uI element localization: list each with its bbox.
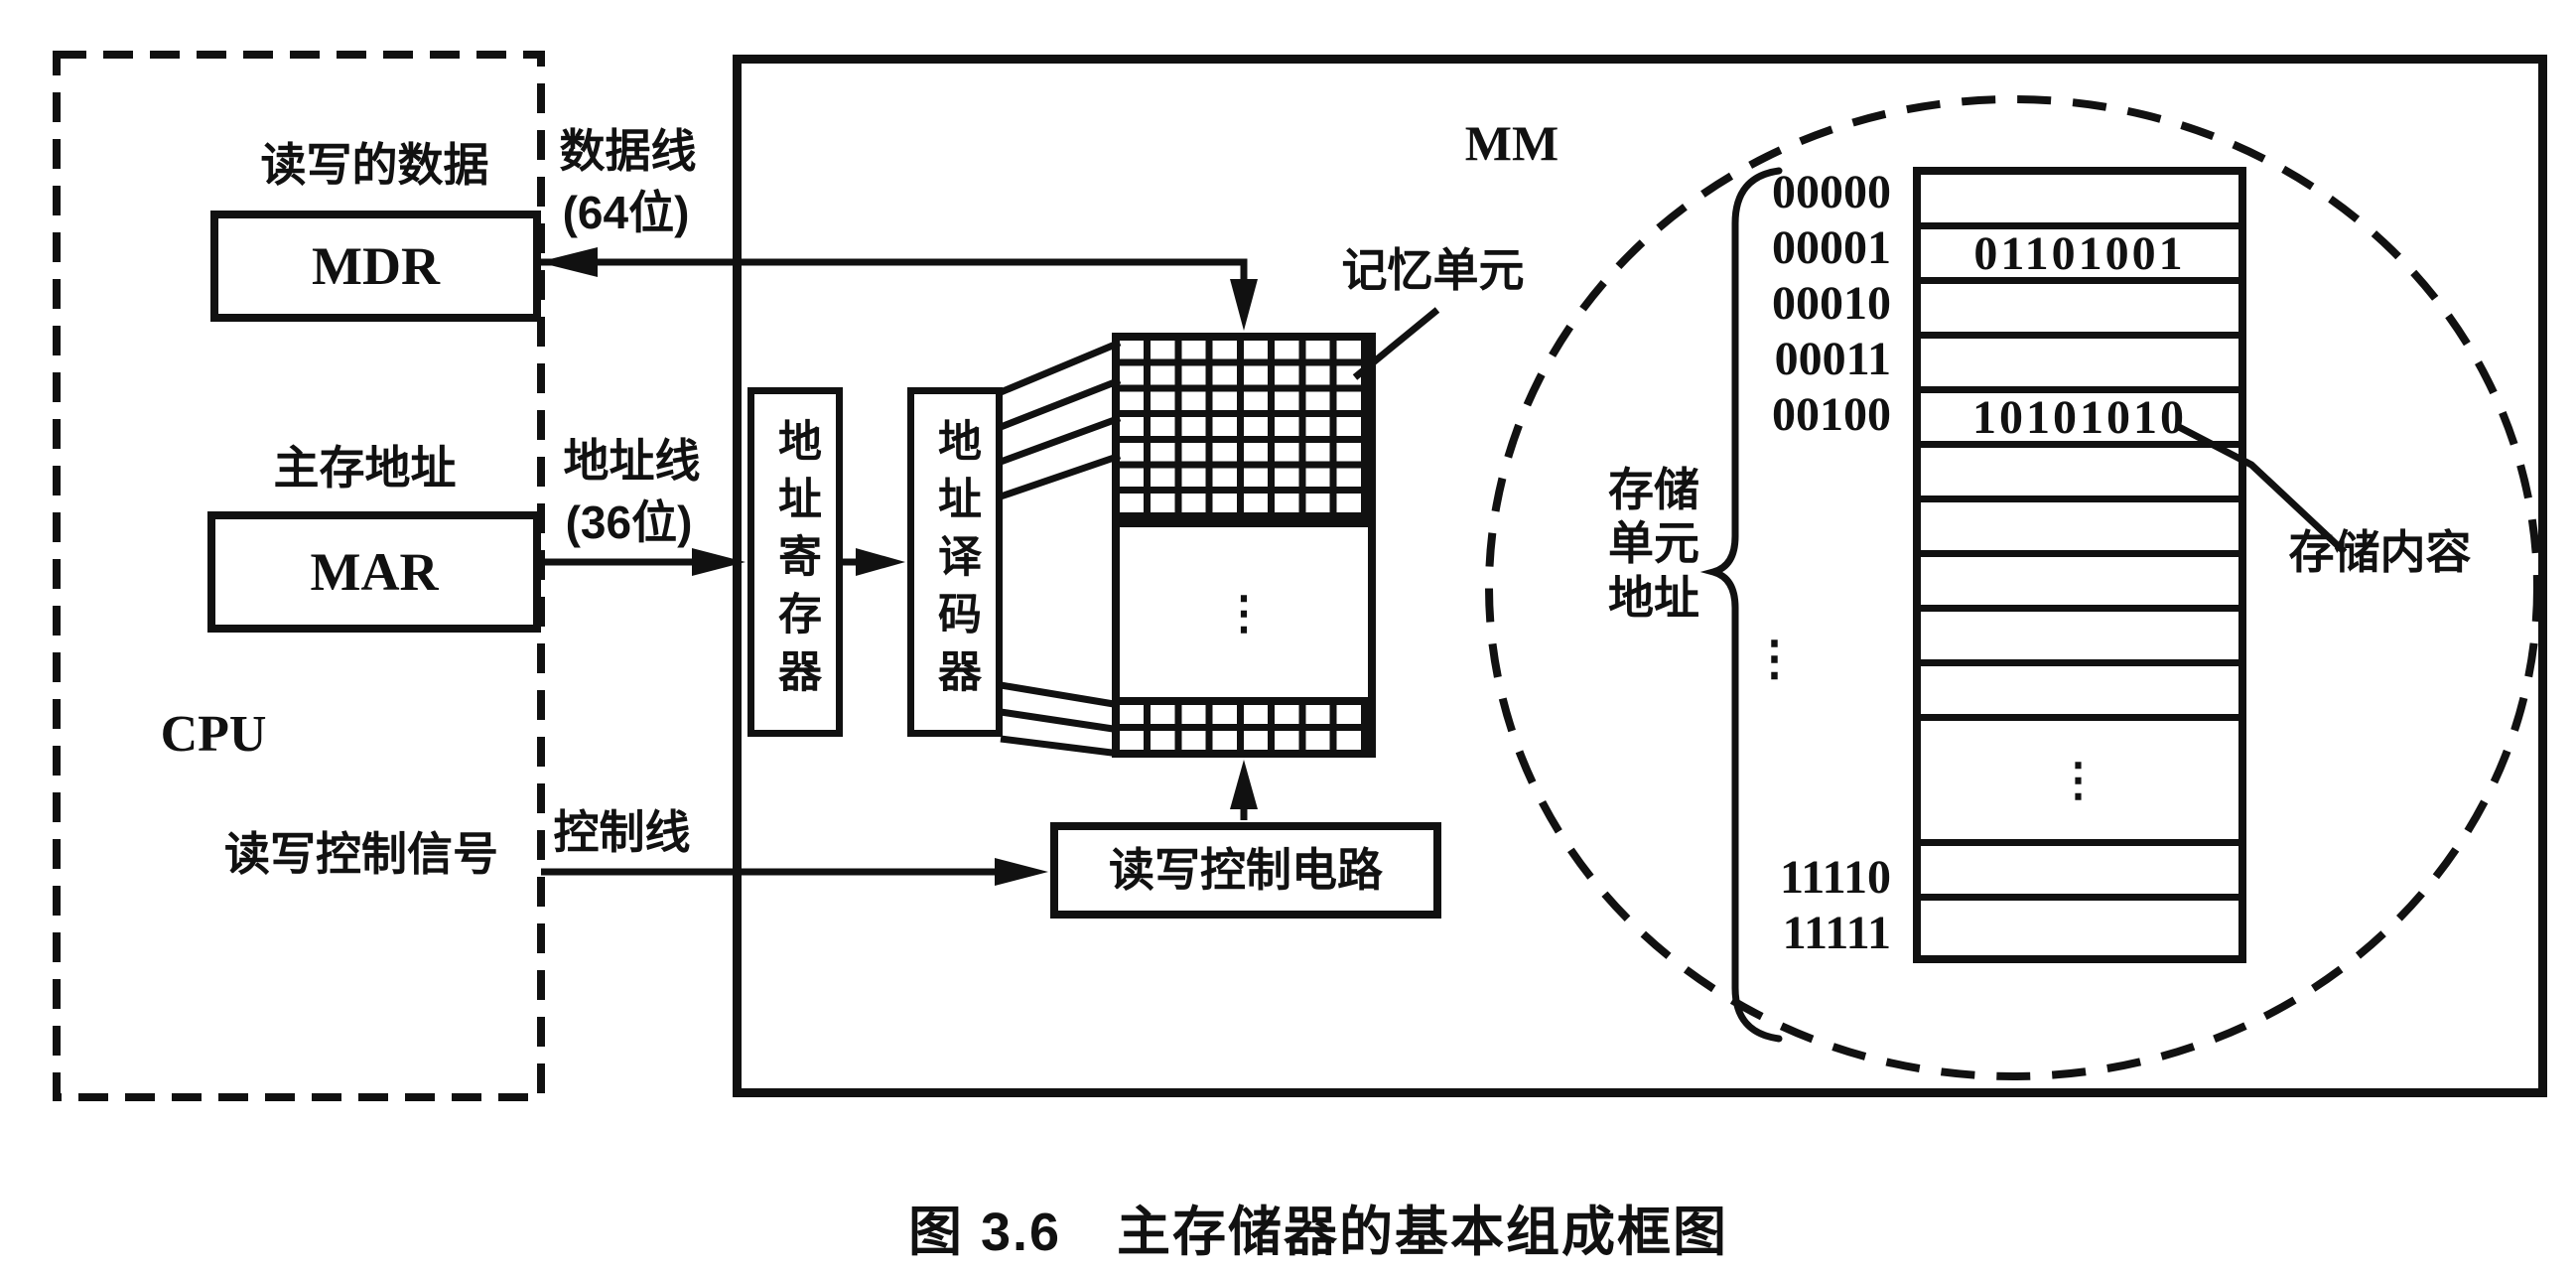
mar-box: MAR — [207, 511, 541, 633]
address-decoder-label: 地址译码器 — [923, 418, 987, 706]
address-label: 00000 — [1717, 169, 1891, 216]
address-label: 11111 — [1717, 910, 1891, 957]
memory-array-ellipsis: ⋮ — [1221, 590, 1267, 636]
memory-row-content: 01101001 — [1973, 226, 2185, 281]
address-register-box: 地址寄存器 — [747, 387, 843, 737]
memory-row — [1921, 284, 2238, 339]
address-label: 00100 — [1717, 391, 1891, 439]
address-label: 00001 — [1717, 224, 1891, 272]
data-line-arrowhead-left — [538, 247, 598, 277]
mar-label: MAR — [215, 519, 533, 625]
memory-row — [1921, 448, 2238, 502]
figure-caption: 图 3.6 主存储器的基本组成框图 — [842, 1188, 1795, 1266]
mdr-box: MDR — [210, 211, 541, 322]
stored-content-label: 存储内容 — [2263, 526, 2497, 579]
memory-row-ellipsis: ⋮ — [1921, 721, 2238, 846]
address-line-width-label: (36位) — [532, 496, 726, 549]
rw-control-circuit-label: 读写控制电路 — [1109, 844, 1383, 897]
address-decoder-box: 地址译码器 — [907, 387, 1003, 737]
memory-row — [1921, 901, 2238, 955]
mdr-label: MDR — [218, 218, 533, 314]
data-line-width-label: (64位) — [534, 187, 718, 239]
address-label: 00010 — [1717, 280, 1891, 328]
mdr-title: 读写的数据 — [208, 139, 541, 192]
figure-canvas: CPU 读写的数据 MDR 主存地址 MAR 读写控制信号 数据线 (64位) … — [0, 0, 2576, 1274]
memory-row — [1921, 612, 2238, 666]
table-ellipsis: ⋮ — [2056, 758, 2104, 803]
control-line-label: 控制线 — [540, 806, 704, 859]
address-label: 00011 — [1717, 336, 1891, 383]
data-line-label: 数据线 — [536, 125, 720, 178]
memory-row — [1921, 339, 2238, 393]
memory-cell-array-bottom-hatch — [1120, 705, 1368, 750]
memory-row: 10101010 — [1921, 393, 2238, 448]
memory-row: 01101001 — [1921, 229, 2238, 284]
memory-word-table: 01101001 10101010 ⋮ — [1913, 167, 2246, 963]
storage-unit-address-label: 存储 单元 地址 — [1590, 463, 1717, 625]
memory-cell-array-top-hatch — [1120, 341, 1368, 527]
address-line-label: 地址线 — [540, 435, 724, 488]
memory-cell-array: ⋮ — [1112, 333, 1376, 758]
memory-row — [1921, 502, 2238, 557]
memory-row — [1921, 175, 2238, 229]
memory-row — [1921, 557, 2238, 612]
memory-row — [1921, 666, 2238, 721]
rw-control-circuit-box: 读写控制电路 — [1050, 822, 1441, 919]
rw-control-signal-label: 读写控制信号 — [206, 828, 516, 881]
memory-row — [1921, 846, 2238, 901]
mar-title: 主存地址 — [208, 442, 521, 495]
memory-cell-label: 记忆单元 — [1326, 244, 1540, 297]
memory-row-content: 10101010 — [1972, 390, 2187, 445]
mm-label: MM — [1437, 115, 1586, 173]
cpu-label: CPU — [139, 705, 288, 765]
address-column-ellipsis: ⋮ — [1688, 636, 1861, 683]
memory-cell-array-middle: ⋮ — [1120, 527, 1368, 705]
address-register-label: 地址寄存器 — [763, 418, 827, 706]
address-label: 11110 — [1717, 854, 1891, 902]
